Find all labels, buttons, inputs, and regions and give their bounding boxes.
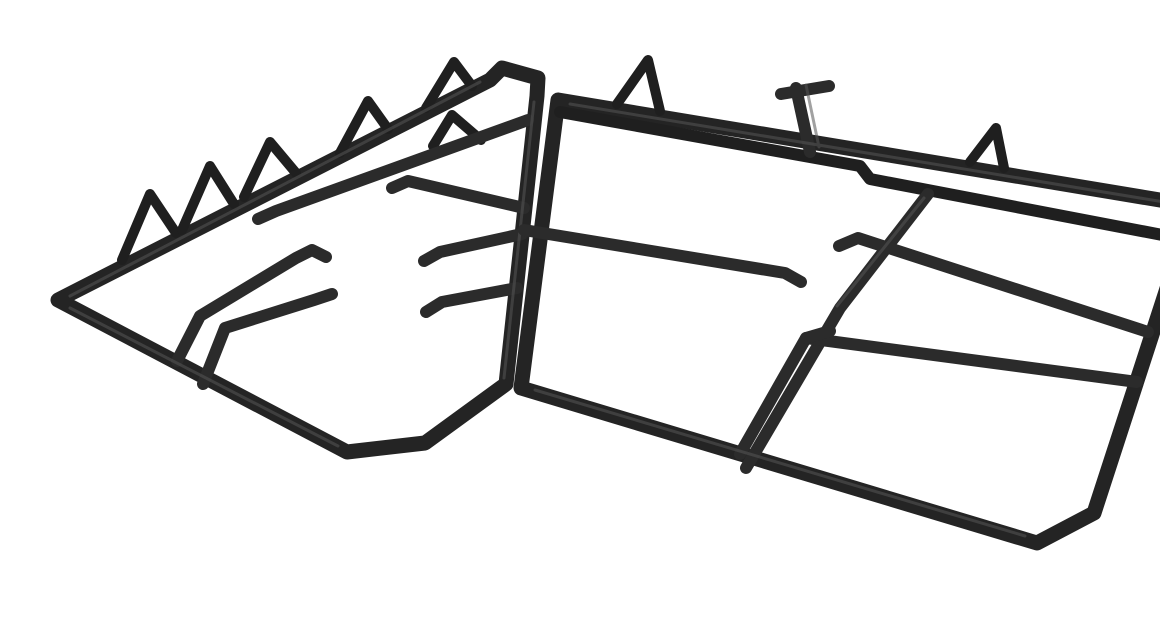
- product-photo: Two black cast-iron pan support grates f…: [40, 16, 1160, 616]
- pan-support-grates-image: Two black cast-iron pan support grates f…: [40, 16, 1160, 616]
- finger-bar-tab: [806, 331, 830, 338]
